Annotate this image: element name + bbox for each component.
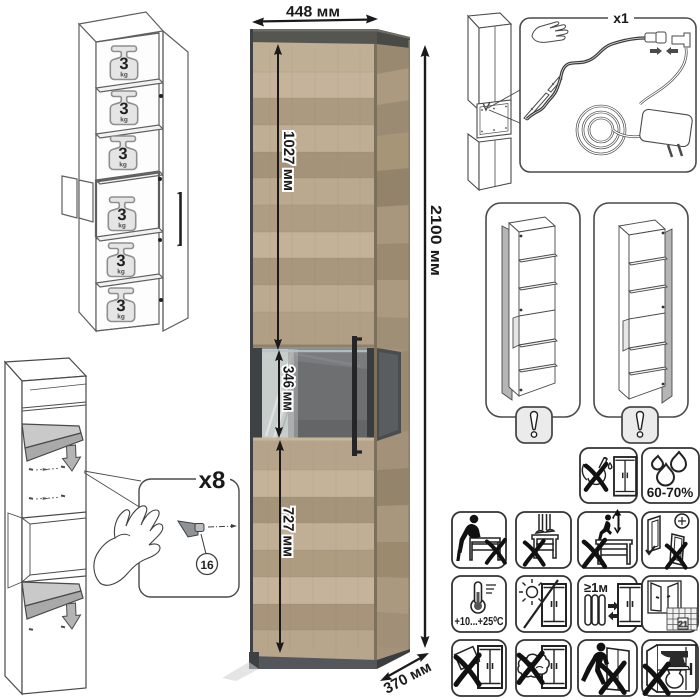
svg-text:21: 21	[678, 619, 688, 629]
svg-text:448 мм: 448 мм	[286, 4, 340, 21]
svg-text:16: 16	[200, 558, 214, 572]
svg-text:2100 мм: 2100 мм	[427, 205, 444, 276]
svg-text:1027 мм: 1027 мм	[280, 131, 297, 191]
svg-text:≥1м: ≥1м	[584, 580, 608, 595]
svg-text:346 мм: 346 мм	[280, 366, 297, 411]
svg-text:x8: x8	[199, 467, 226, 494]
svg-text:727 мм: 727 мм	[280, 507, 297, 557]
svg-text:+10...+25⁰C: +10...+25⁰C	[455, 616, 504, 628]
svg-text:60-70%: 60-70%	[647, 485, 694, 500]
svg-text:x1: x1	[613, 10, 629, 26]
